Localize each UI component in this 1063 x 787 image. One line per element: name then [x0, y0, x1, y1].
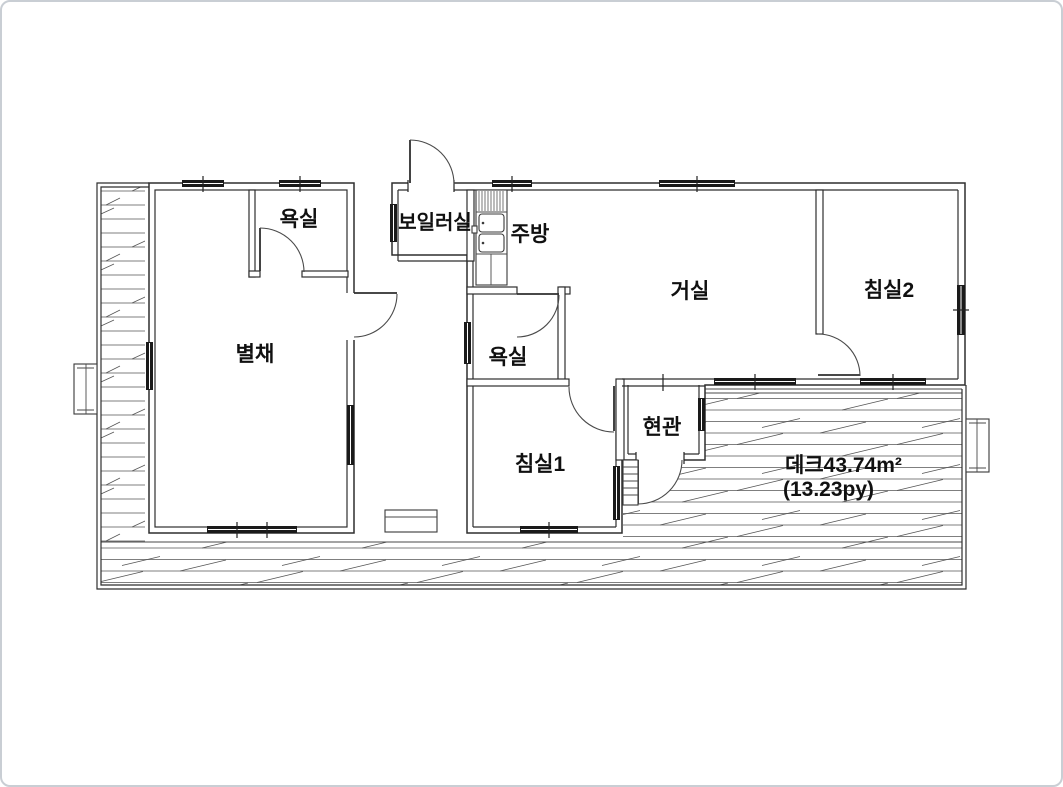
room-label-bedroom2: 침실2 [864, 279, 914, 302]
room-label-boiler: 보일러실 [398, 211, 472, 234]
bathroom-north-wall-left [467, 287, 517, 294]
bathroom-west-window [464, 322, 471, 364]
right-porch-step [966, 419, 989, 472]
kitchen-counter [472, 190, 507, 285]
room-label-bedroom1: 침실1 [515, 453, 566, 476]
bedroom1-north-wall [467, 379, 569, 386]
boiler-exterior-door [408, 140, 454, 192]
annex-east-door [346, 293, 397, 340]
room-label-kitchen: 주방 [511, 223, 550, 246]
left-porch-step [74, 364, 97, 414]
deck-area-label: 데크43.74m² [785, 454, 902, 477]
room-label-living: 거실 [671, 280, 710, 303]
bedroom2-west-wall [816, 190, 823, 334]
faucet [472, 226, 477, 233]
floorplan-canvas: 욕실 보일러실 주방 거실 침실2 별채 욕실 현관 침실1 데크43.74m²… [0, 0, 1063, 787]
entrance-east-window [698, 398, 705, 431]
entrance-steps [623, 460, 638, 505]
annex-west-window [146, 342, 153, 390]
annex-bath-south-wall-right [302, 271, 348, 277]
entrance-west-wall [616, 379, 624, 460]
room-label-bathroom: 욕실 [489, 346, 528, 369]
deck-pyeong-label: (13.23py) [783, 478, 874, 501]
annex-bath-south-wall-left [249, 271, 260, 277]
floorplan-drawing: 욕실 보일러실 주방 거실 침실2 별채 욕실 현관 침실1 데크43.74m²… [2, 2, 1063, 787]
bedroom1-east-window [613, 466, 620, 520]
deck-bottom-strip [101, 542, 962, 585]
deck-left-strip [101, 187, 145, 542]
room-label-entrance: 현관 [643, 416, 682, 439]
room-label-annex-bathroom: 욕실 [280, 208, 319, 231]
boiler-west-window [390, 204, 397, 242]
annex-bath-west-wall [249, 190, 255, 277]
annex-east-window [347, 405, 354, 465]
corridor-step [385, 510, 437, 532]
room-label-annex: 별채 [236, 343, 275, 366]
